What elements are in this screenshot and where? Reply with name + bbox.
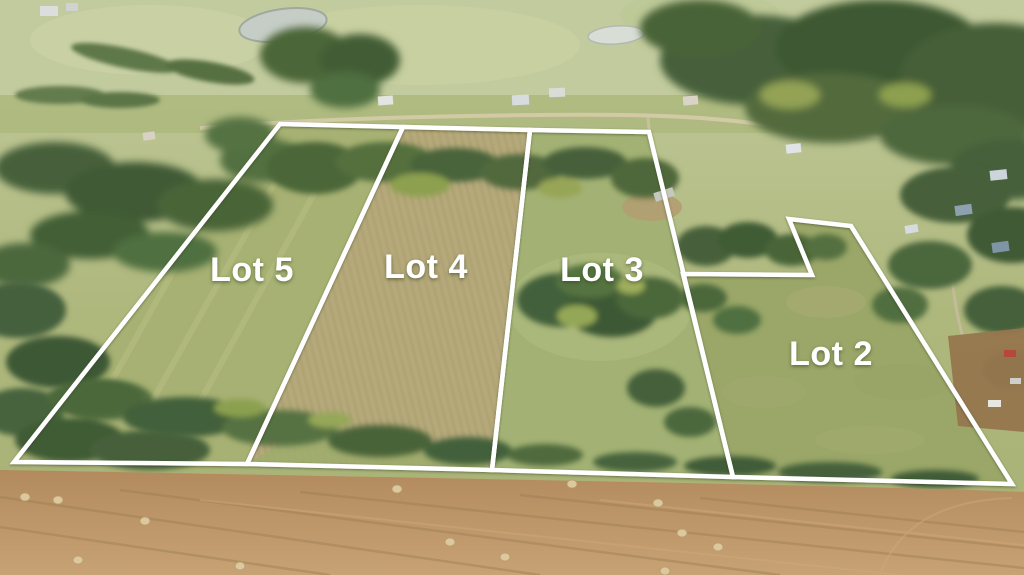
dirt-yard [948, 328, 1024, 432]
lot-label-lot-3: Lot 3 [560, 251, 644, 289]
lot-label-lot-5: Lot 5 [210, 251, 294, 289]
aerial-photo-canvas: Lot 5Lot 4Lot 3Lot 2 [0, 0, 1024, 575]
lot-label-lot-2: Lot 2 [789, 335, 873, 373]
aerial-lot-photo: Lot 5Lot 4Lot 3Lot 2 [0, 0, 1024, 575]
lot-label-lot-4: Lot 4 [384, 248, 468, 286]
